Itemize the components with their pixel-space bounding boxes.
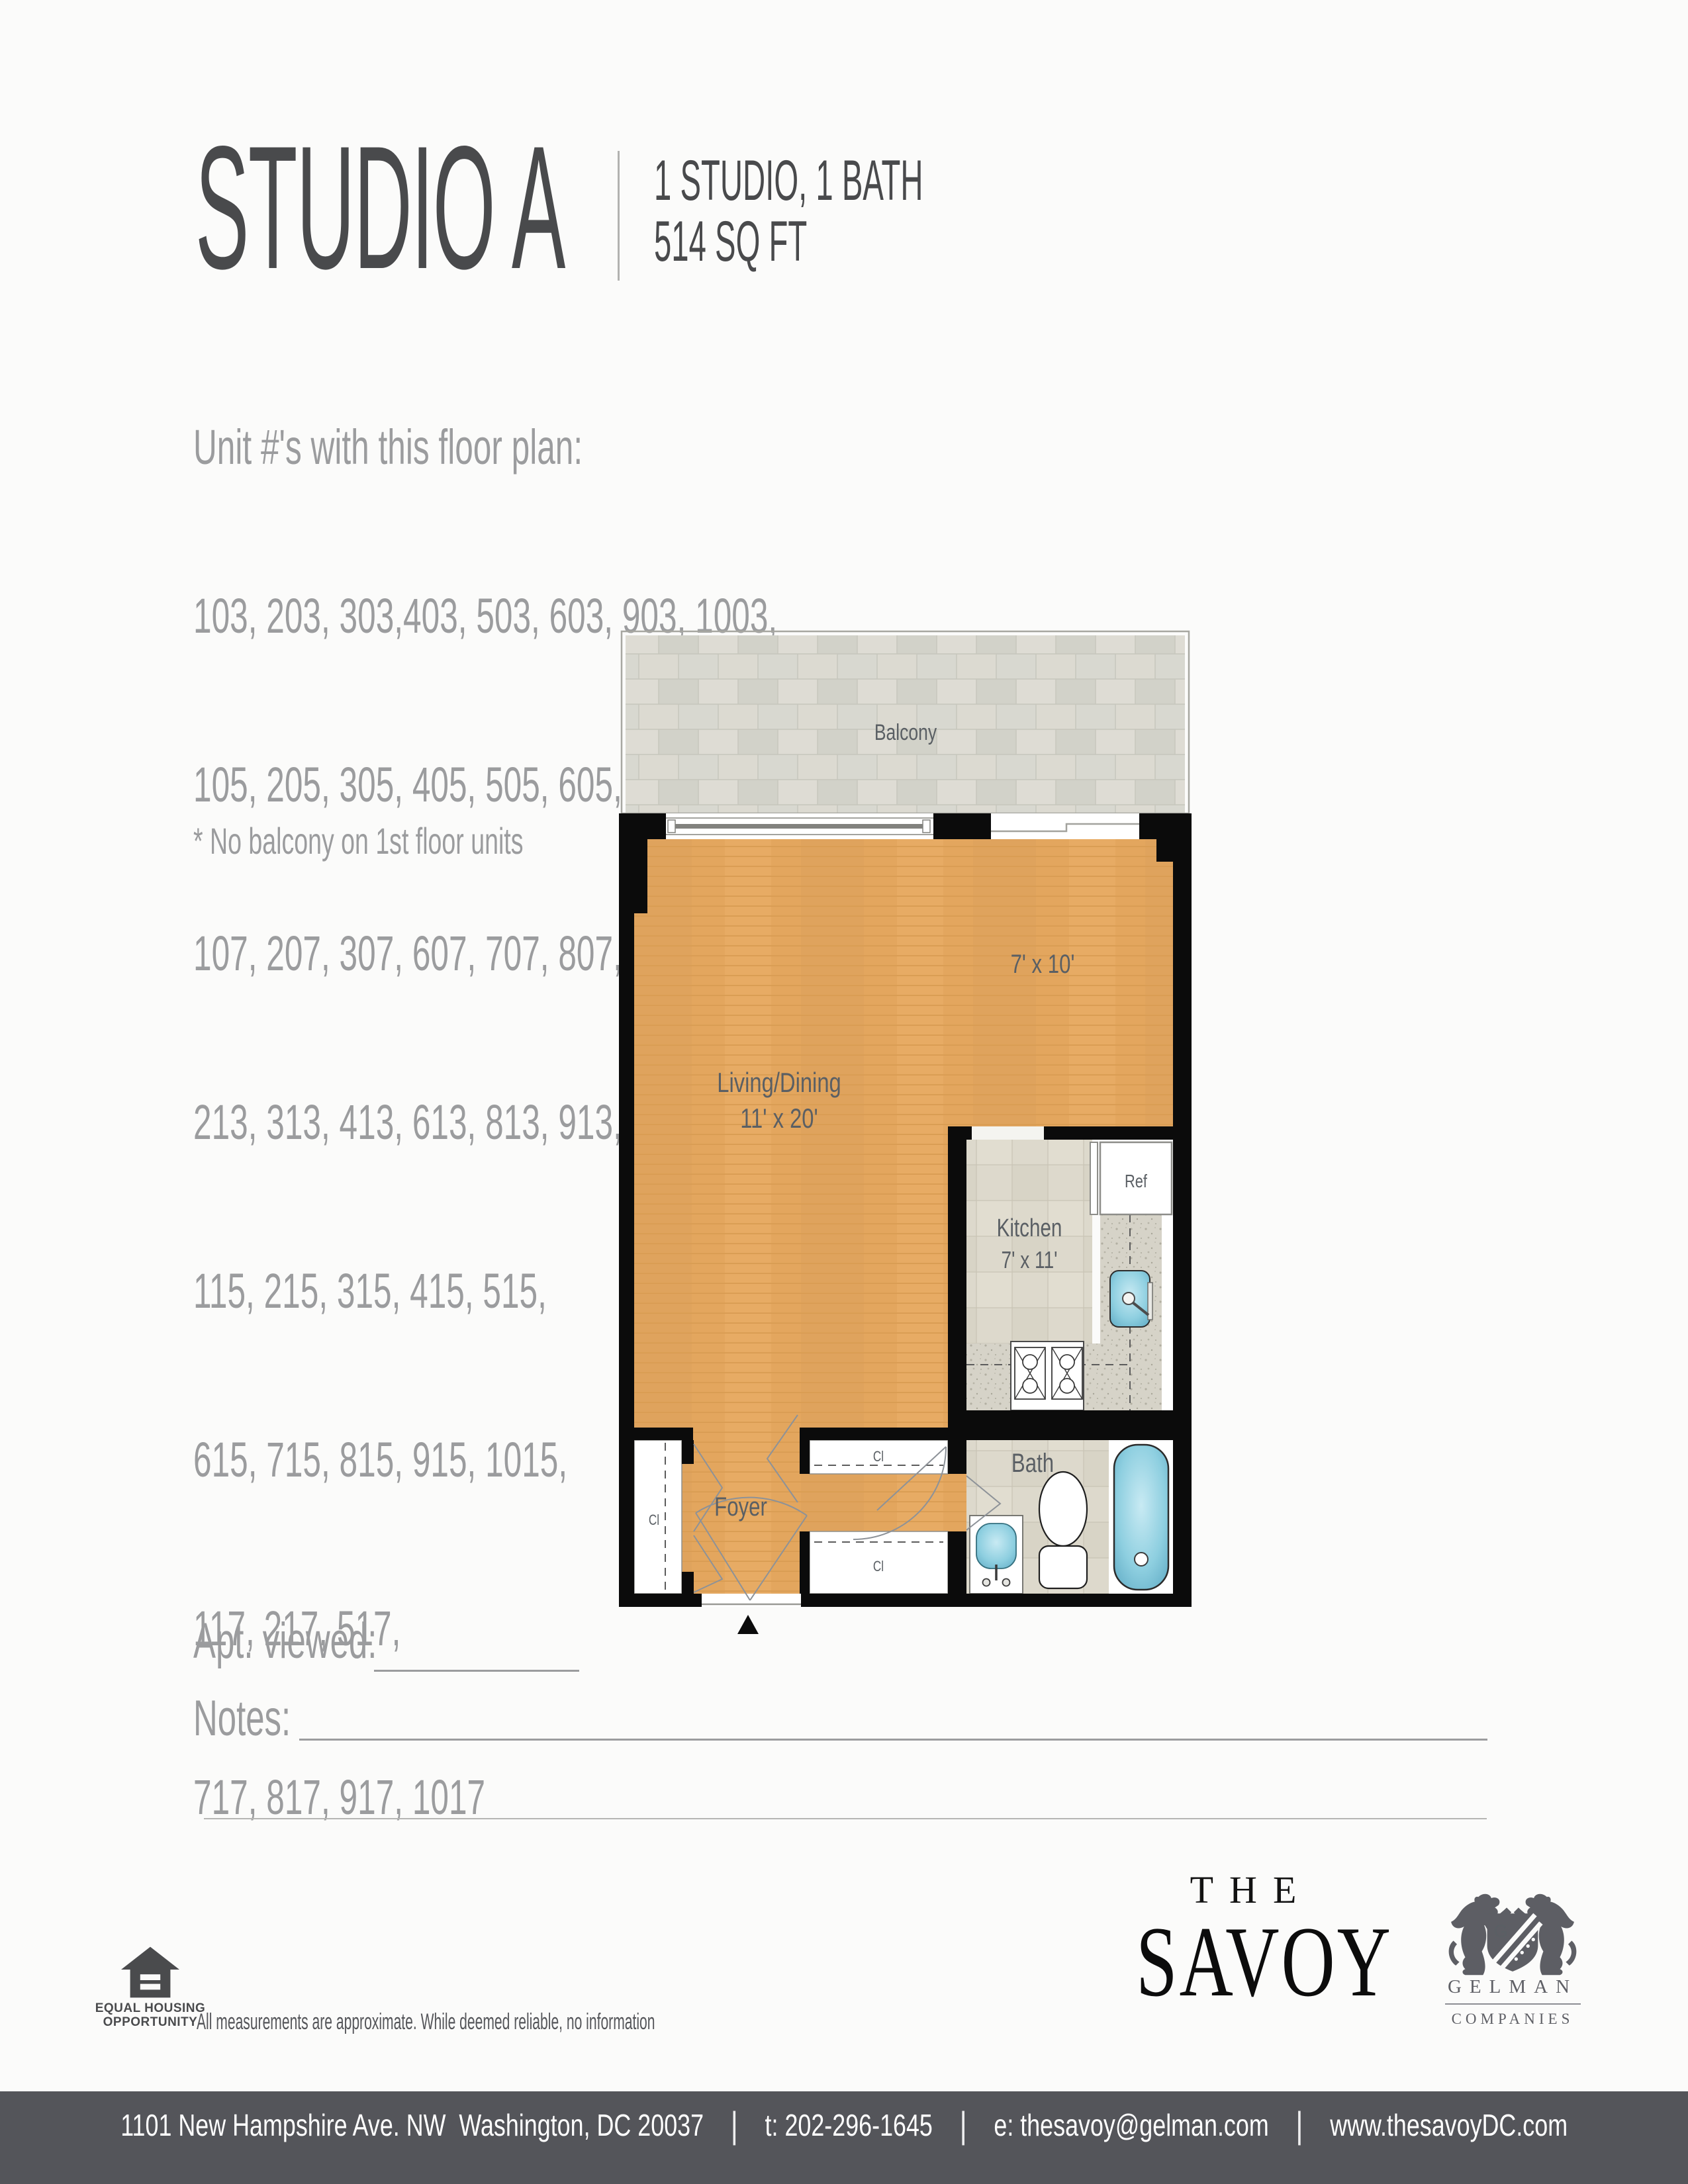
bath-label: Bath bbox=[1011, 1448, 1054, 1478]
notes-label: Notes: bbox=[193, 1692, 291, 1745]
footer-divider: | bbox=[959, 2103, 966, 2146]
floor-plan: Balcony 7' x 10' Living/Dining 11' x 20'… bbox=[619, 629, 1192, 1638]
stove bbox=[1011, 1342, 1084, 1410]
footer-address: 1101 New Hampshire Ave. NW Washington, D… bbox=[120, 2107, 704, 2143]
balcony-note: * No balcony on 1st floor units bbox=[193, 821, 523, 861]
kitchen-label: Kitchen bbox=[997, 1214, 1062, 1242]
flyer-page: STUDIO A 1 STUDIO, 1 BATH 514 SQ FT Unit… bbox=[0, 0, 1688, 2184]
unit-line: 717, 817, 917, 1017 bbox=[193, 1769, 859, 1825]
section-divider bbox=[204, 1818, 1487, 1819]
gelman-crest-icon: G bbox=[1446, 1888, 1579, 1976]
living-dim-label: 11' x 20' bbox=[740, 1103, 818, 1134]
gelman-initial: G bbox=[1494, 1921, 1508, 1941]
equal-housing-icon bbox=[121, 1946, 179, 1999]
closet-label-left: Cl bbox=[649, 1512, 659, 1529]
gelman-name: GELMAN bbox=[1427, 1976, 1599, 1998]
closet-label-bottom: Cl bbox=[873, 1559, 884, 1575]
sliding-door bbox=[675, 824, 925, 829]
entry-door bbox=[702, 1594, 801, 1607]
apt-viewed-line bbox=[374, 1670, 579, 1672]
footer-bar: 1101 New Hampshire Ave. NW Washington, D… bbox=[0, 2091, 1688, 2184]
gelman-logo: G GELMAN COMPANIES bbox=[1427, 1888, 1599, 2028]
footer-web: www.thesavoyDC.com bbox=[1330, 2107, 1568, 2143]
bathroom-sink bbox=[970, 1516, 1023, 1594]
toilet bbox=[1039, 1472, 1087, 1588]
notes-line bbox=[299, 1739, 1487, 1741]
footer-divider: | bbox=[1295, 2103, 1303, 2146]
kitchen-dim-label: 7' x 11' bbox=[1001, 1247, 1057, 1273]
units-heading: Unit #'s with this floor plan: bbox=[193, 419, 859, 475]
eho-text-1: EQUAL HOUSING bbox=[91, 2001, 209, 2015]
balcony-label: Balcony bbox=[874, 720, 937, 745]
savoy-name: SAVOY bbox=[1136, 1912, 1366, 2011]
title-divider bbox=[618, 151, 620, 281]
bathtub bbox=[1114, 1445, 1168, 1590]
footer-phone: t: 202-296-1645 bbox=[765, 2107, 932, 2143]
spec-line-2: 514 SQ FT bbox=[654, 211, 807, 272]
gelman-divider bbox=[1445, 2003, 1581, 2005]
apt-viewed-label: Apt. viewed: bbox=[193, 1615, 377, 1668]
ref-label: Ref bbox=[1125, 1171, 1148, 1191]
entry-arrow-icon bbox=[737, 1615, 759, 1634]
savoy-logo: THE SAVOY bbox=[1096, 1868, 1407, 2011]
closet-label-top: Cl bbox=[873, 1449, 884, 1465]
alcove-dim-label: 7' x 10' bbox=[1011, 949, 1075, 979]
kitchen-sink bbox=[1110, 1271, 1152, 1327]
disclaimer-line-1: All measurements are approximate. While … bbox=[197, 2007, 659, 2037]
gelman-sub: COMPANIES bbox=[1427, 2011, 1599, 2028]
foyer-label: Foyer bbox=[714, 1492, 767, 1522]
savoy-the: THE bbox=[1096, 1868, 1407, 1912]
page-title: STUDIO A bbox=[195, 120, 565, 296]
footer-email: e: thesavoy@gelman.com bbox=[994, 2107, 1268, 2143]
eho-text-2: OPPORTUNITY bbox=[91, 2015, 209, 2029]
footer-divider: | bbox=[730, 2103, 737, 2146]
living-dining-label: Living/Dining bbox=[717, 1067, 841, 1098]
spec-line-1: 1 STUDIO, 1 BATH bbox=[654, 150, 923, 211]
